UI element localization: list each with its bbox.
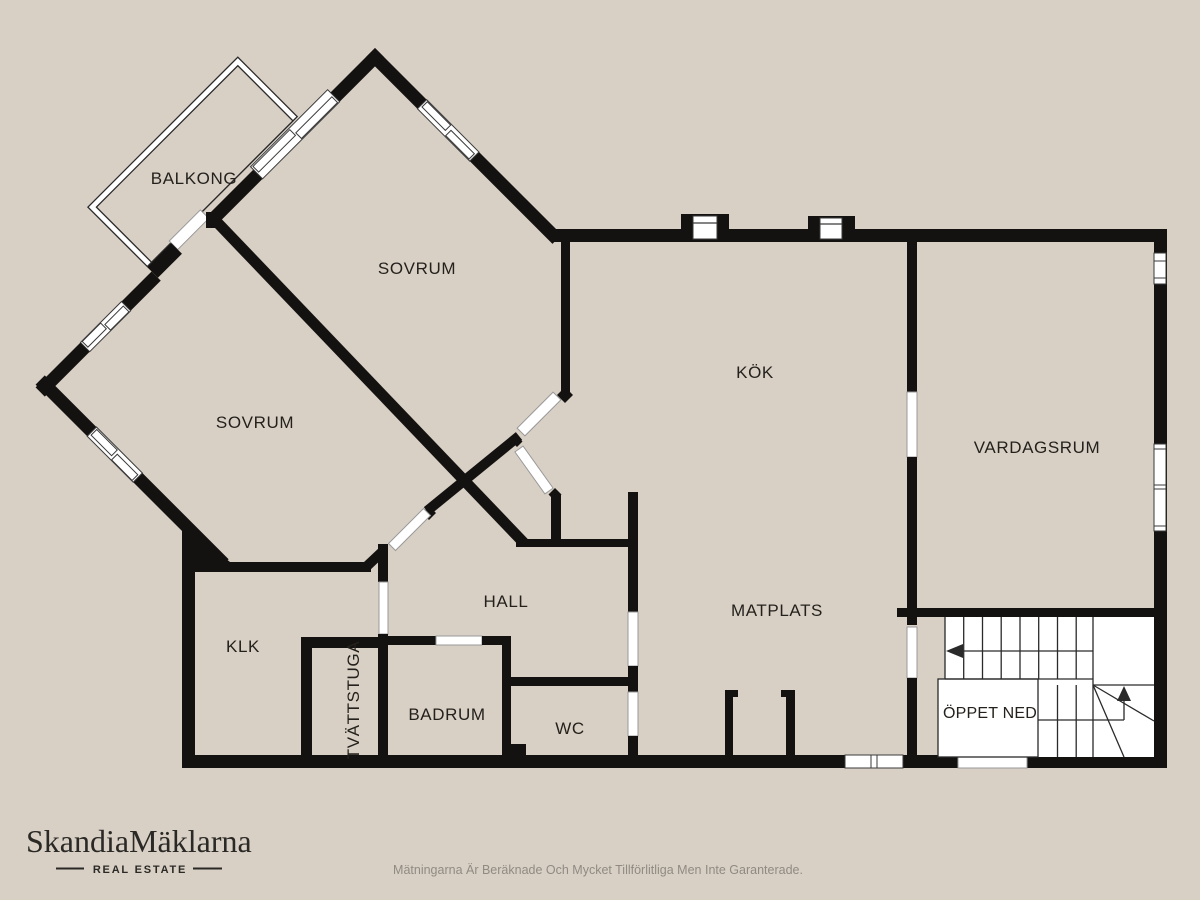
svg-text:SOVRUM: SOVRUM [216,413,294,432]
svg-text:KLK: KLK [226,637,260,656]
svg-text:SkandiaMäklarna: SkandiaMäklarna [26,823,252,859]
svg-text:BADRUM: BADRUM [408,705,485,724]
svg-text:VARDAGSRUM: VARDAGSRUM [974,438,1101,457]
svg-text:HALL: HALL [484,592,529,611]
svg-text:SOVRUM: SOVRUM [378,259,456,278]
svg-text:Mätningarna Är Beräknade Och M: Mätningarna Är Beräknade Och Mycket Till… [393,863,803,877]
svg-text:ÖPPET NED: ÖPPET NED [943,704,1037,722]
svg-text:MATPLATS: MATPLATS [731,601,823,620]
svg-text:KÖK: KÖK [736,363,774,382]
svg-text:WC: WC [555,719,585,738]
svg-text:TVÄTTSTUGA: TVÄTTSTUGA [344,641,363,759]
svg-text:REAL ESTATE: REAL ESTATE [93,864,187,876]
svg-text:BALKONG: BALKONG [151,169,237,188]
